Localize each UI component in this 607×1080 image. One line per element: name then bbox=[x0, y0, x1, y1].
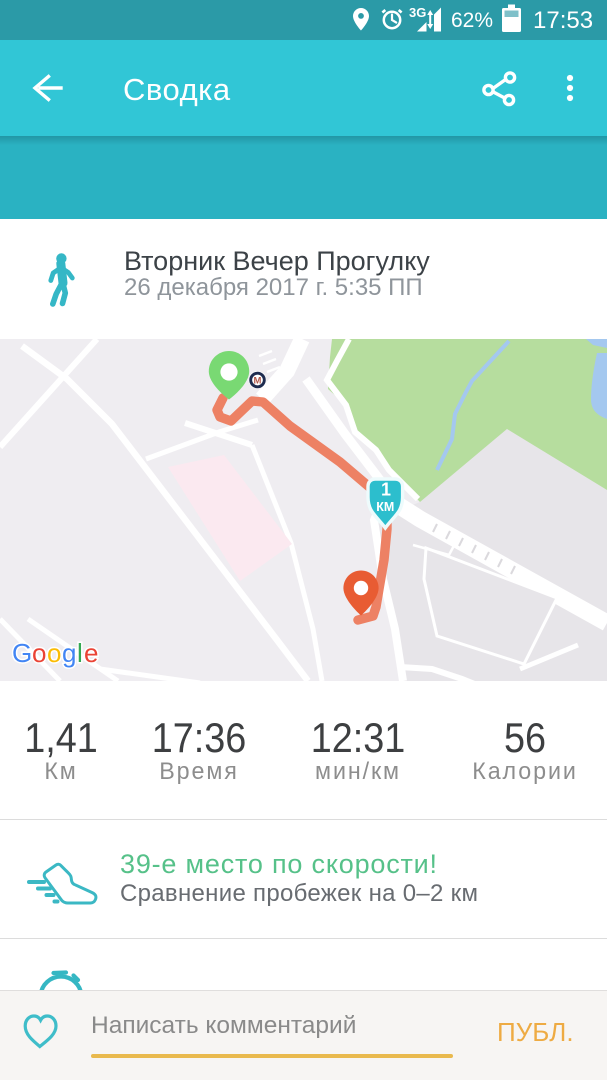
svg-text:M: M bbox=[254, 376, 262, 387]
svg-text:o: o bbox=[32, 638, 46, 668]
svg-text:3G: 3G bbox=[409, 5, 426, 20]
svg-text:o: o bbox=[47, 638, 61, 668]
svg-text:e: e bbox=[84, 638, 98, 668]
svg-text:62%: 62% bbox=[451, 9, 493, 32]
svg-text:l: l bbox=[77, 638, 83, 668]
svg-text:1: 1 bbox=[381, 480, 391, 500]
svg-text:G: G bbox=[12, 638, 32, 668]
svg-text:КМ: КМ bbox=[376, 500, 394, 514]
svg-text:17:53: 17:53 bbox=[533, 7, 593, 34]
svg-text:g: g bbox=[62, 638, 76, 668]
